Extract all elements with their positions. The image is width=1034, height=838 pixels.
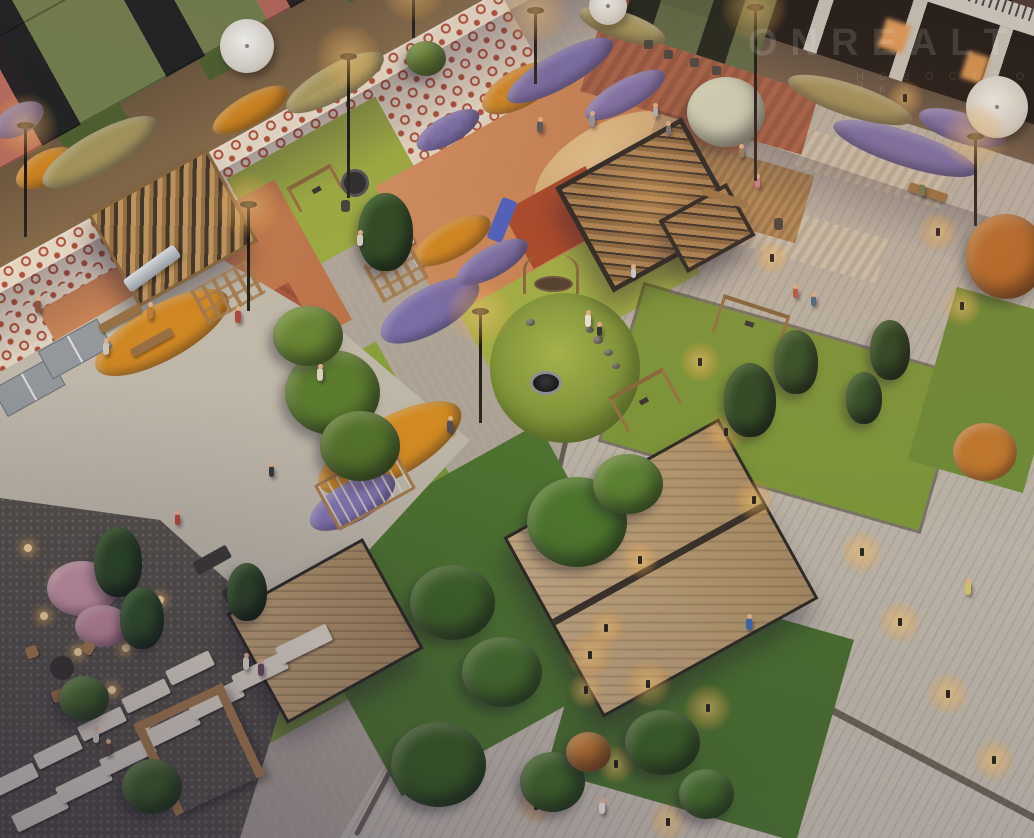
autumn-shrub [953,423,1017,481]
conifer-tree [870,320,910,380]
cafe-chair [712,66,721,75]
pedestrian [653,107,658,117]
bollard-light-glow [726,472,782,528]
conifer-tree [724,363,776,437]
pedestrian [103,342,109,355]
bollard-light-glow [749,235,795,281]
street-lamp [347,58,350,198]
pedestrian [258,663,264,676]
pedestrian [93,730,99,743]
bollard-light-glow [871,593,929,651]
street-lamp [534,12,537,84]
bollard-light-glow [672,334,728,390]
pedestrian [357,234,363,246]
bollard-light-glow [833,523,891,581]
deciduous-tree [391,722,486,807]
stepping-slab [121,678,171,713]
pedestrian [746,618,752,630]
autumn-tree [566,732,611,772]
street-lamp [412,0,415,38]
bollard-light-glow [615,535,665,585]
park-bench [908,182,949,203]
bollard-light-glow [919,665,977,723]
pedestrian [243,657,249,670]
deciduous-tree [410,565,495,640]
string-light [40,612,48,620]
street-lamp [247,206,250,311]
bollard-light-glow [911,205,965,259]
string-light [24,544,32,552]
street-lamp [24,127,27,237]
scene-sprites [0,0,1034,838]
pedestrian [447,420,453,433]
rock [593,336,603,344]
pedestrian [147,306,153,319]
stepping-slab [165,650,215,685]
rock [586,327,594,333]
swing-set [608,367,682,432]
pedestrian [597,326,602,336]
courtyard-render: ONREALT Н О В О С Т Р О Й К И [0,0,1034,838]
swing-set [286,164,343,213]
pedestrian [793,288,798,298]
pedestrian [666,125,671,135]
stepping-slab [33,734,83,769]
deciduous-tree [320,411,400,481]
deciduous-tree [122,759,182,814]
conifer-tree [120,587,164,649]
autumn-tree [966,214,1034,299]
trampoline [341,169,369,197]
trash-bin [774,218,783,230]
nest-swing [523,254,579,294]
deciduous-tree [59,676,109,721]
stepping-slab [275,624,333,665]
pedestrian [585,314,591,327]
pedestrian [105,743,111,756]
slide [123,244,182,293]
deciduous-tree [273,306,343,366]
pedestrian [811,296,816,306]
conifer-tree [227,563,267,621]
cafe-table [50,656,74,680]
string-light [108,686,116,694]
rock [604,349,613,356]
bollard-light-glow [965,731,1023,789]
rock [526,319,535,326]
pedestrian [599,802,605,814]
deciduous-tree [462,637,542,707]
street-lamp [479,313,482,423]
pavilion-wall-glow [616,652,680,716]
pedestrian [589,115,595,127]
deciduous-tree [593,454,663,514]
pedestrian [35,300,41,313]
conifer-tree [846,372,882,424]
marigold-bed [206,76,295,143]
pedestrian [919,184,925,196]
street-lamp [974,138,977,226]
deciduous-tree [679,769,734,819]
pedestrian [175,514,180,525]
conifer-tree [358,193,413,271]
conifer-tree [774,330,818,394]
exercise-mat [192,545,232,576]
string-light [122,644,130,652]
cafe-chair [24,644,39,659]
pavilion-wall-glow [558,623,622,687]
rock [612,363,620,369]
pedestrian [965,582,971,595]
deciduous-tree [625,710,700,775]
pedestrian [537,121,543,133]
street-lamp [754,9,757,181]
pedestrian [739,148,744,158]
pedestrian [317,368,323,381]
conifer-tree [94,527,142,597]
pedestrian [269,466,274,477]
patio-umbrella [220,19,274,73]
cafe-chair [644,40,653,49]
pedestrian [631,268,636,278]
balance-log [701,187,749,209]
stepping-slab [0,762,39,797]
trash-bin [341,200,350,212]
deciduous-tree [406,41,446,76]
cafe-chair [664,50,673,59]
pedestrian [235,310,241,323]
lavender-bed [411,101,486,159]
cafe-chair [690,58,699,67]
